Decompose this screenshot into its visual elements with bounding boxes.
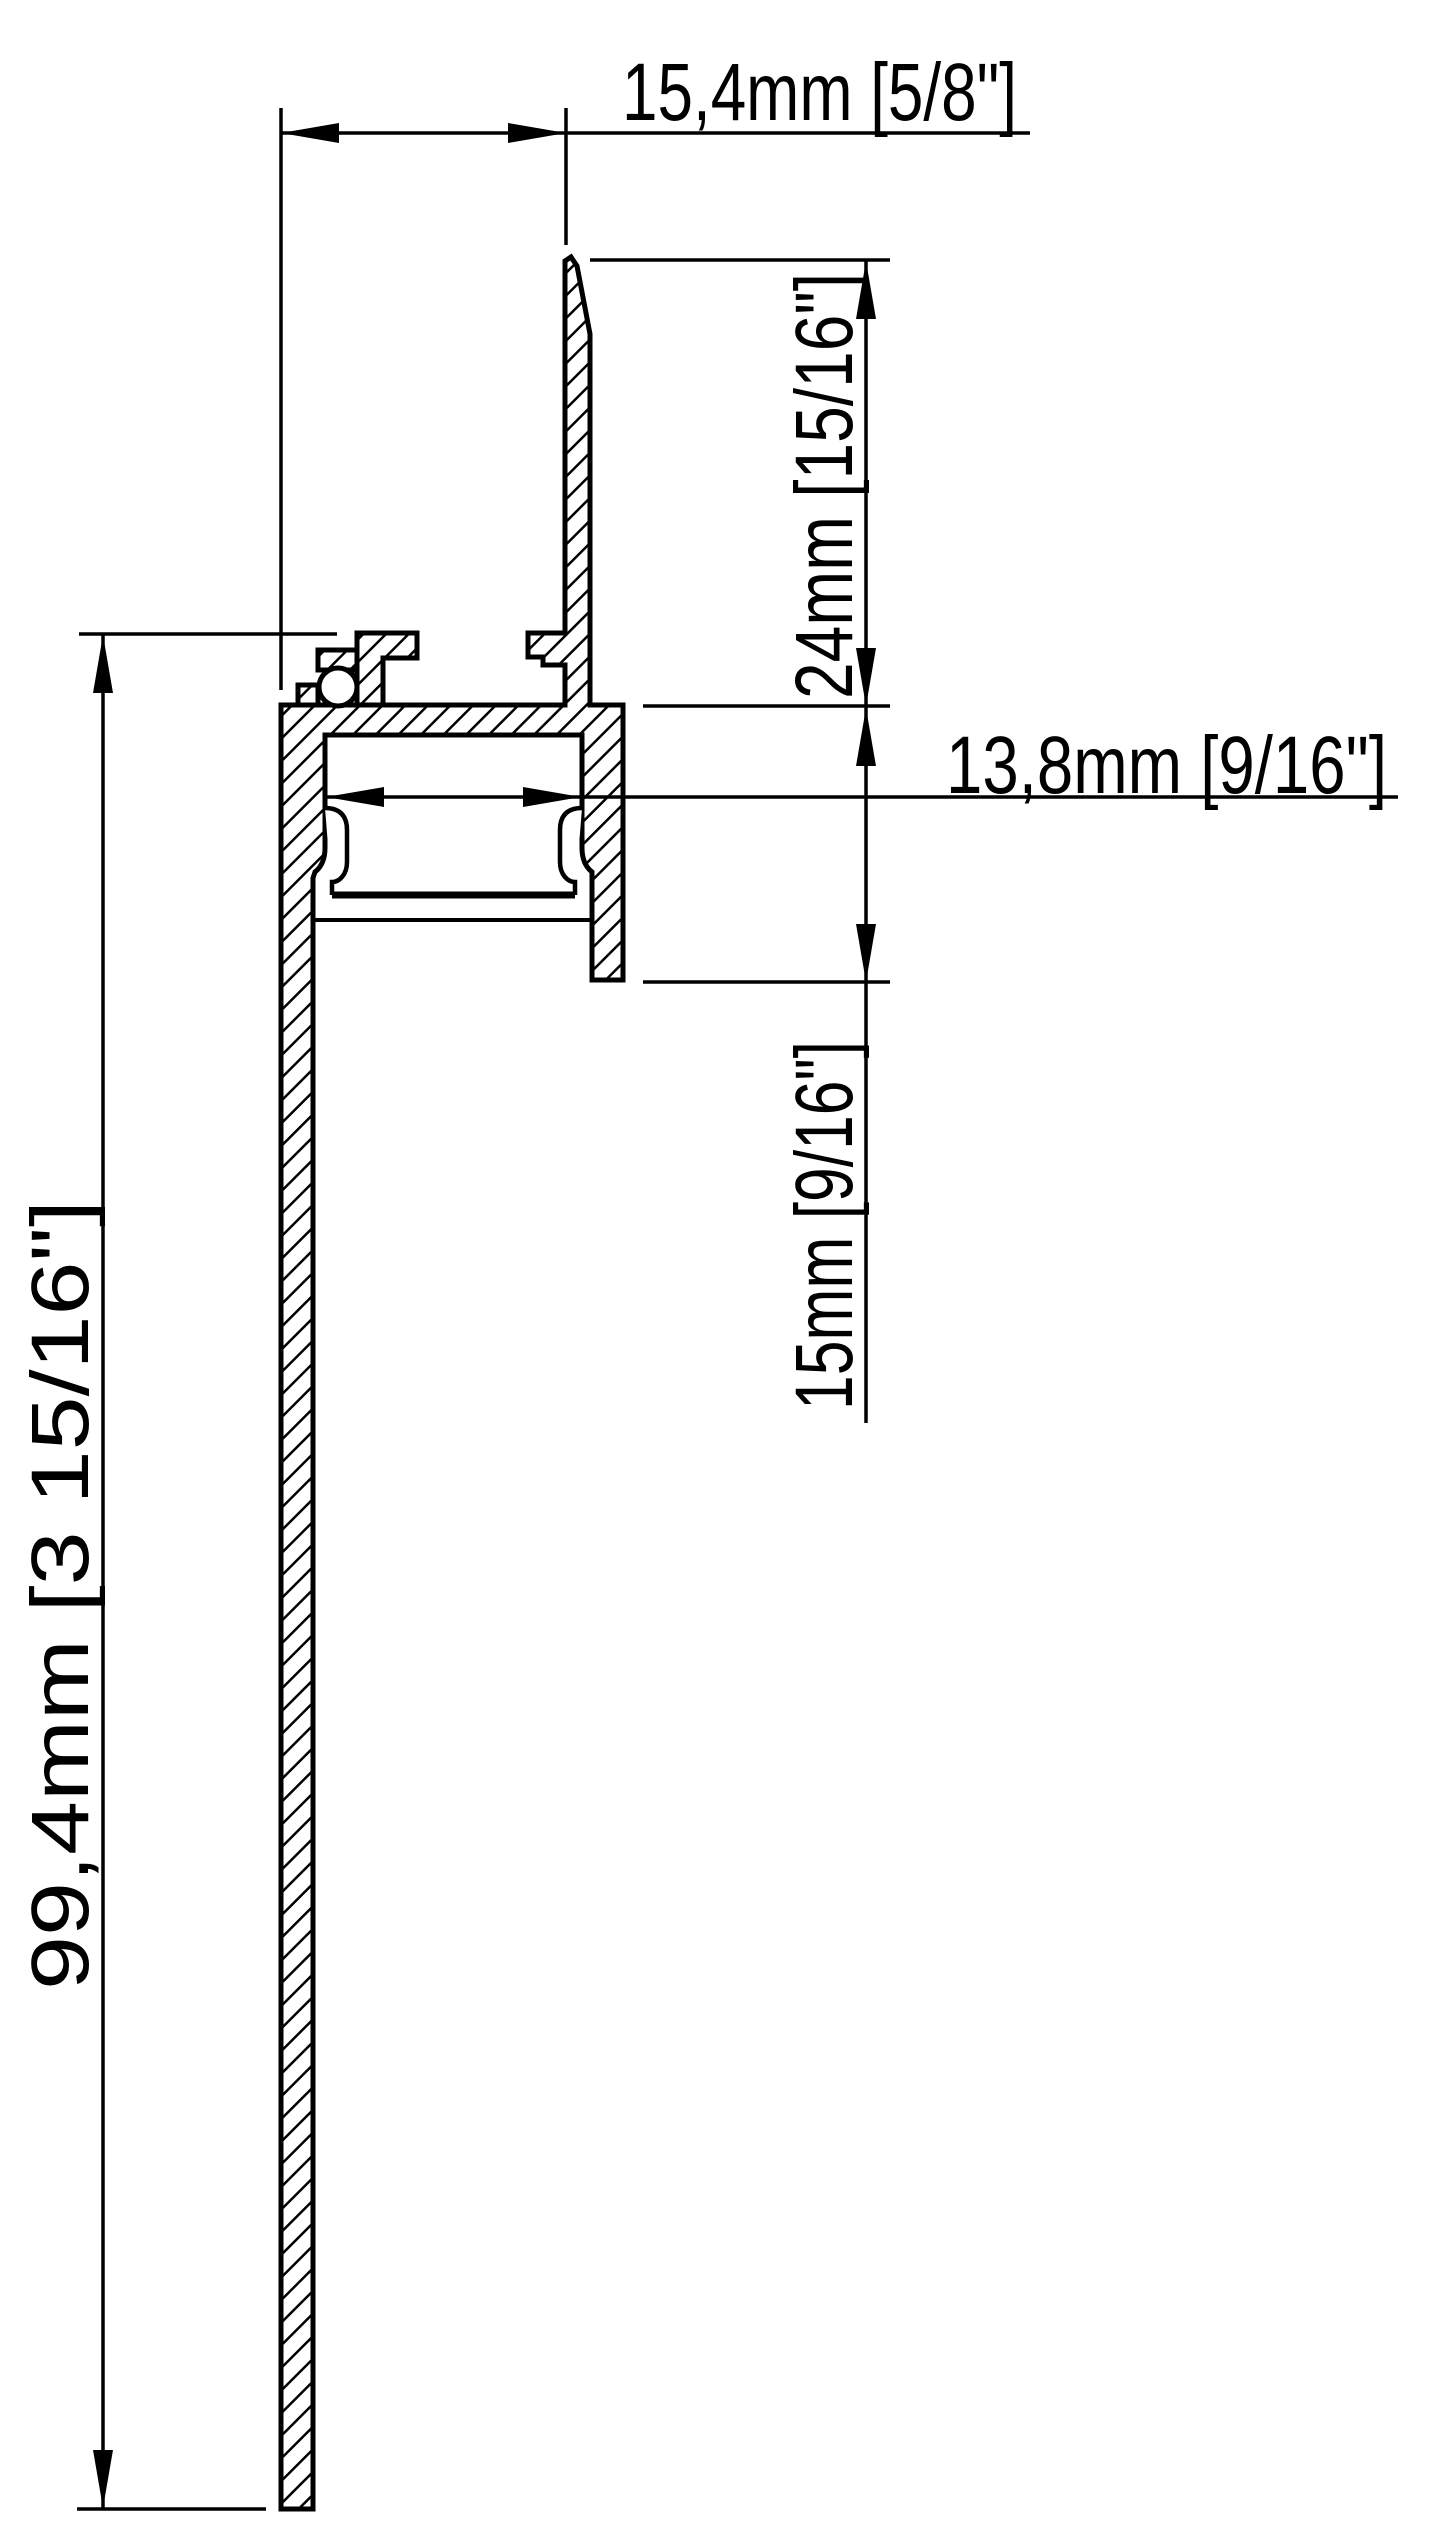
drawing-background	[0, 0, 1438, 2532]
dim-label-overall-height: 99,4mm [3 15/16"]	[15, 1200, 106, 1990]
clip-bead-circle	[319, 668, 357, 706]
clip-block-lower	[298, 685, 318, 705]
profile-cross-section-drawing: 15,4mm [5/8"] 24mm [15/16"] 13,8mm [9/16…	[0, 0, 1438, 2532]
technical-drawing-page: 15,4mm [5/8"] 24mm [15/16"] 13,8mm [9/16…	[0, 0, 1438, 2532]
dim-label-inner-width: 13,8mm [9/16"]	[946, 720, 1387, 811]
dim-label-top-width: 15,4mm [5/8"]	[622, 47, 1017, 138]
dim-label-fin-height: 24mm [15/16"]	[779, 273, 870, 699]
dim-label-flange-depth: 15mm [9/16"]	[779, 1041, 870, 1410]
